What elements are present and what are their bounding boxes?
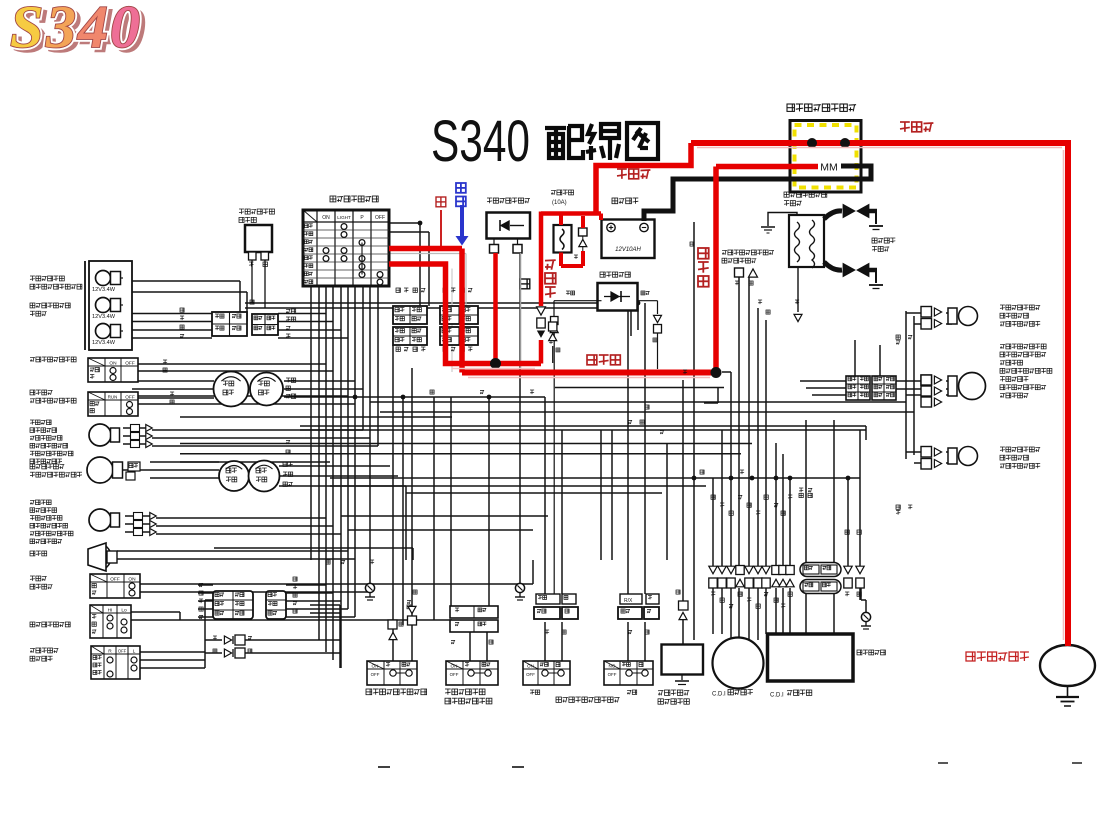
svg-text:ON: ON bbox=[128, 577, 136, 583]
svg-text:OFF: OFF bbox=[526, 672, 535, 677]
svg-text:ON: ON bbox=[372, 664, 379, 669]
svg-text:12V3.4W: 12V3.4W bbox=[92, 287, 116, 293]
svg-text:OFF: OFF bbox=[118, 649, 127, 654]
svg-text:C.D.I: C.D.I bbox=[712, 692, 726, 698]
svg-text:L: L bbox=[133, 649, 136, 655]
svg-text:ON: ON bbox=[322, 215, 330, 221]
svg-text:Lo: Lo bbox=[121, 608, 127, 614]
svg-text:4: 4 bbox=[77, 0, 108, 60]
svg-text:C.D.I: C.D.I bbox=[770, 693, 784, 699]
svg-text:12V3.4W: 12V3.4W bbox=[92, 314, 116, 320]
svg-text:ON: ON bbox=[109, 361, 117, 367]
svg-text:OFF: OFF bbox=[125, 361, 135, 367]
svg-text:RUN: RUN bbox=[108, 395, 118, 400]
svg-text:OFF: OFF bbox=[371, 672, 380, 677]
svg-text:R: R bbox=[108, 649, 112, 655]
svg-text:OFF: OFF bbox=[110, 577, 120, 583]
svg-text:OFF: OFF bbox=[125, 395, 135, 401]
svg-text:OFF: OFF bbox=[608, 672, 617, 677]
svg-text:OFF: OFF bbox=[450, 672, 459, 677]
svg-text:S: S bbox=[10, 0, 43, 60]
svg-text:12V3.4W: 12V3.4W bbox=[92, 340, 116, 346]
svg-text:0: 0 bbox=[110, 0, 140, 60]
svg-text:ON: ON bbox=[527, 664, 534, 669]
svg-text:S340: S340 bbox=[431, 109, 530, 174]
svg-text:3: 3 bbox=[45, 0, 76, 60]
svg-text:(10A): (10A) bbox=[552, 200, 567, 206]
svg-text:R/X: R/X bbox=[624, 598, 633, 604]
svg-text:HI: HI bbox=[108, 608, 113, 614]
svg-text:ON: ON bbox=[451, 664, 458, 669]
svg-text:12V10AH: 12V10AH bbox=[615, 247, 641, 253]
svg-text:MM: MM bbox=[820, 162, 838, 174]
svg-text:LIGHT: LIGHT bbox=[337, 215, 351, 220]
svg-text:OFF: OFF bbox=[375, 215, 385, 221]
svg-text:NO: NO bbox=[609, 664, 616, 669]
